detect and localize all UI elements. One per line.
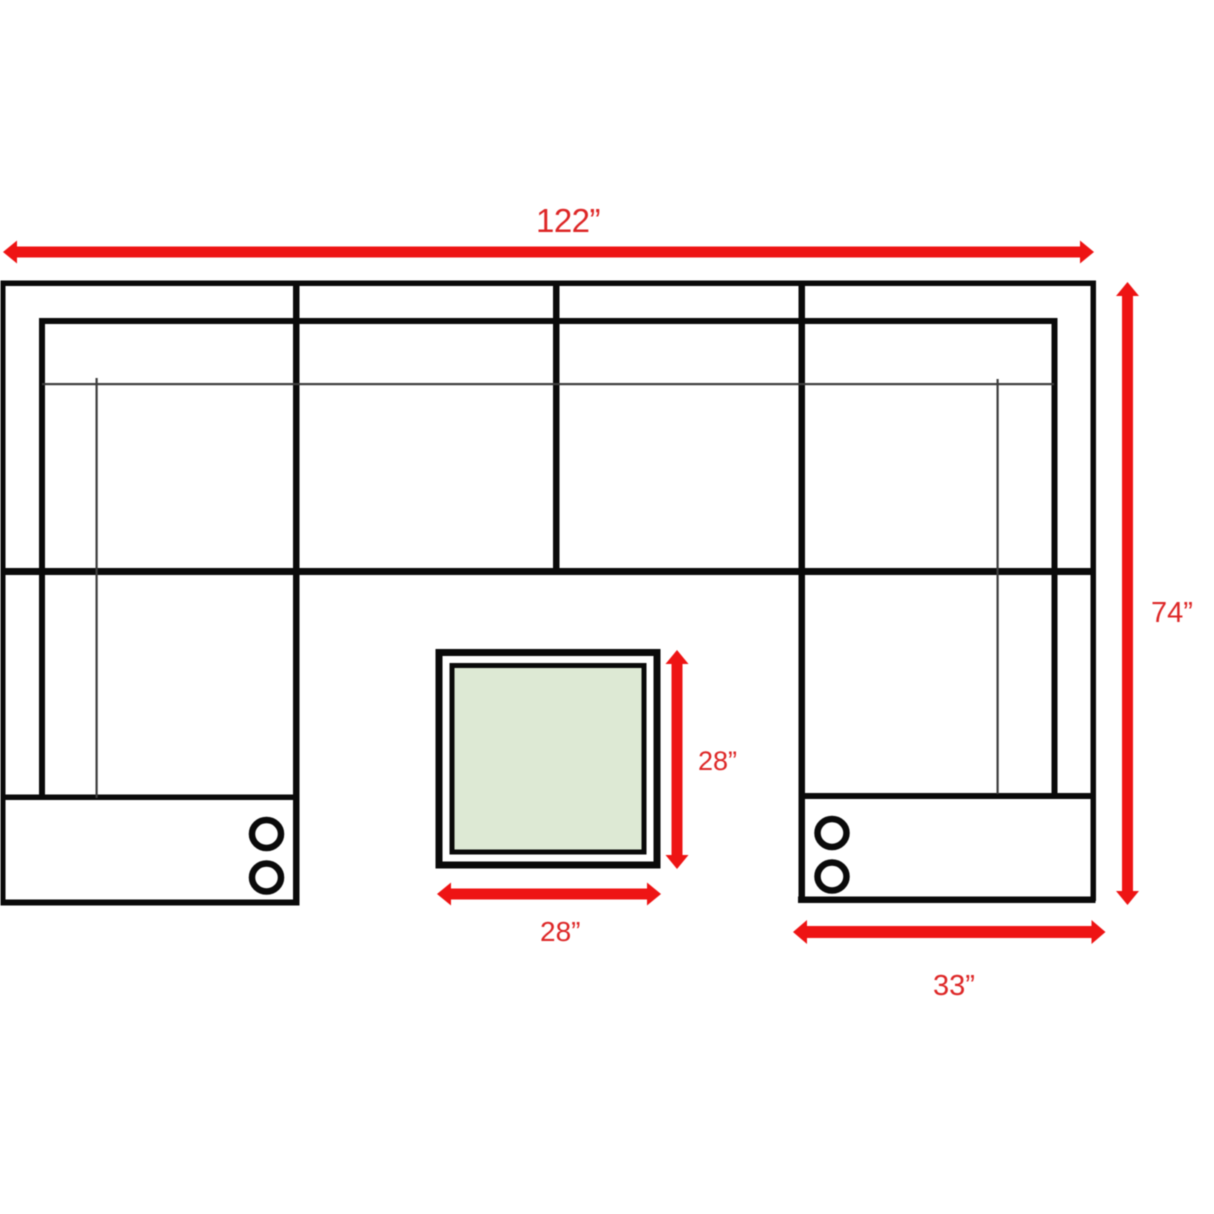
svg-text:122”: 122” bbox=[536, 202, 600, 239]
svg-text:74”: 74” bbox=[1151, 597, 1193, 629]
svg-text:28”: 28” bbox=[540, 916, 580, 947]
svg-text:28”: 28” bbox=[698, 746, 737, 776]
svg-text:33”: 33” bbox=[933, 970, 975, 1002]
